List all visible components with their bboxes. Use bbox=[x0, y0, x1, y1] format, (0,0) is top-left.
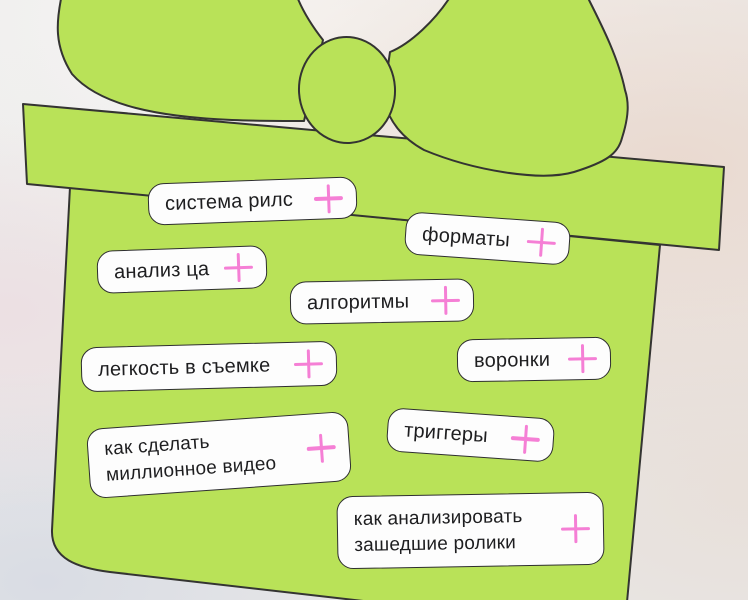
tag-label: легкость в съемке bbox=[98, 352, 271, 383]
plus-icon[interactable] bbox=[431, 286, 461, 316]
canvas: система рилс форматы анализ ца алгоритмы… bbox=[0, 0, 748, 600]
tag-voronki[interactable]: воронки bbox=[457, 337, 612, 383]
tag-label: форматы bbox=[421, 221, 511, 253]
plus-icon[interactable] bbox=[526, 227, 557, 258]
tag-label: как анализировать зашедшие ролики bbox=[354, 504, 524, 559]
tag-label: анализ ца bbox=[114, 256, 210, 285]
plus-icon[interactable] bbox=[561, 514, 591, 544]
plus-icon[interactable] bbox=[313, 183, 343, 213]
plus-icon[interactable] bbox=[510, 423, 541, 454]
tag-sistema-rils[interactable]: система рилс bbox=[147, 176, 357, 225]
tag-label: система рилс bbox=[165, 187, 294, 217]
bow-left-loop bbox=[58, 0, 323, 121]
tag-label: как сделать миллионное видео bbox=[103, 425, 277, 489]
plus-icon[interactable] bbox=[306, 432, 337, 463]
plus-icon[interactable] bbox=[568, 344, 598, 374]
tag-legkost-v-semke[interactable]: легкость в съемке bbox=[80, 341, 337, 393]
plus-icon[interactable] bbox=[223, 253, 253, 283]
tag-label: триггеры bbox=[403, 417, 488, 449]
tag-label: воронки bbox=[474, 346, 551, 373]
tag-algoritmy[interactable]: алгоритмы bbox=[290, 278, 475, 324]
tag-kak-analizirovat-zashedshie-roliki[interactable]: как анализировать зашедшие ролики bbox=[336, 492, 604, 570]
plus-icon[interactable] bbox=[294, 349, 324, 379]
tag-analiz-ca[interactable]: анализ ца bbox=[96, 245, 267, 294]
tag-label: алгоритмы bbox=[307, 288, 410, 316]
